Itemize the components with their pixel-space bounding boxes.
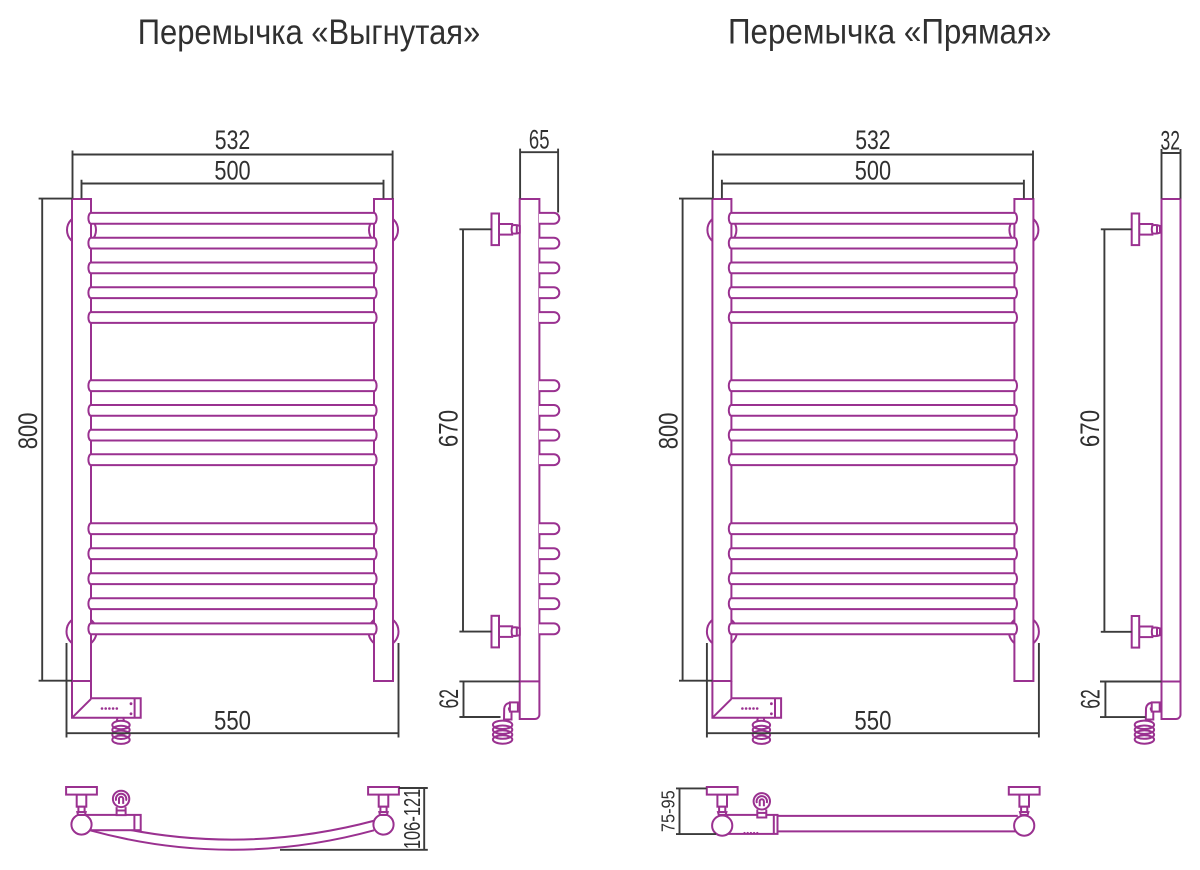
svg-text:Перемычка «Выгнутая»: Перемычка «Выгнутая» <box>138 13 481 52</box>
svg-text:62: 62 <box>434 689 464 709</box>
svg-text:670: 670 <box>434 410 464 447</box>
svg-text:670: 670 <box>1075 410 1105 447</box>
svg-text:Перемычка «Прямая»: Перемычка «Прямая» <box>728 13 1051 52</box>
svg-text:106-121: 106-121 <box>399 789 425 850</box>
svg-text:62: 62 <box>1076 689 1106 709</box>
svg-text:32: 32 <box>1161 125 1181 155</box>
svg-text:65: 65 <box>529 125 550 155</box>
svg-text:75-95: 75-95 <box>658 790 679 832</box>
